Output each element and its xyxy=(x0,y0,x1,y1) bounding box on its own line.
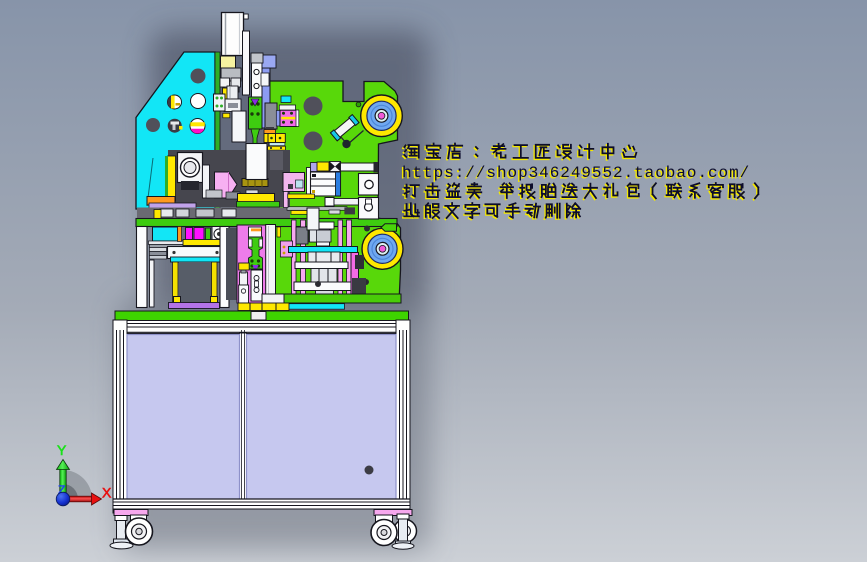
svg-text:Y: Y xyxy=(57,442,67,458)
svg-text:https://shop346249552.taobao.c: https://shop346249552.taobao.com/ xyxy=(402,164,750,182)
svg-text:X: X xyxy=(102,485,112,501)
